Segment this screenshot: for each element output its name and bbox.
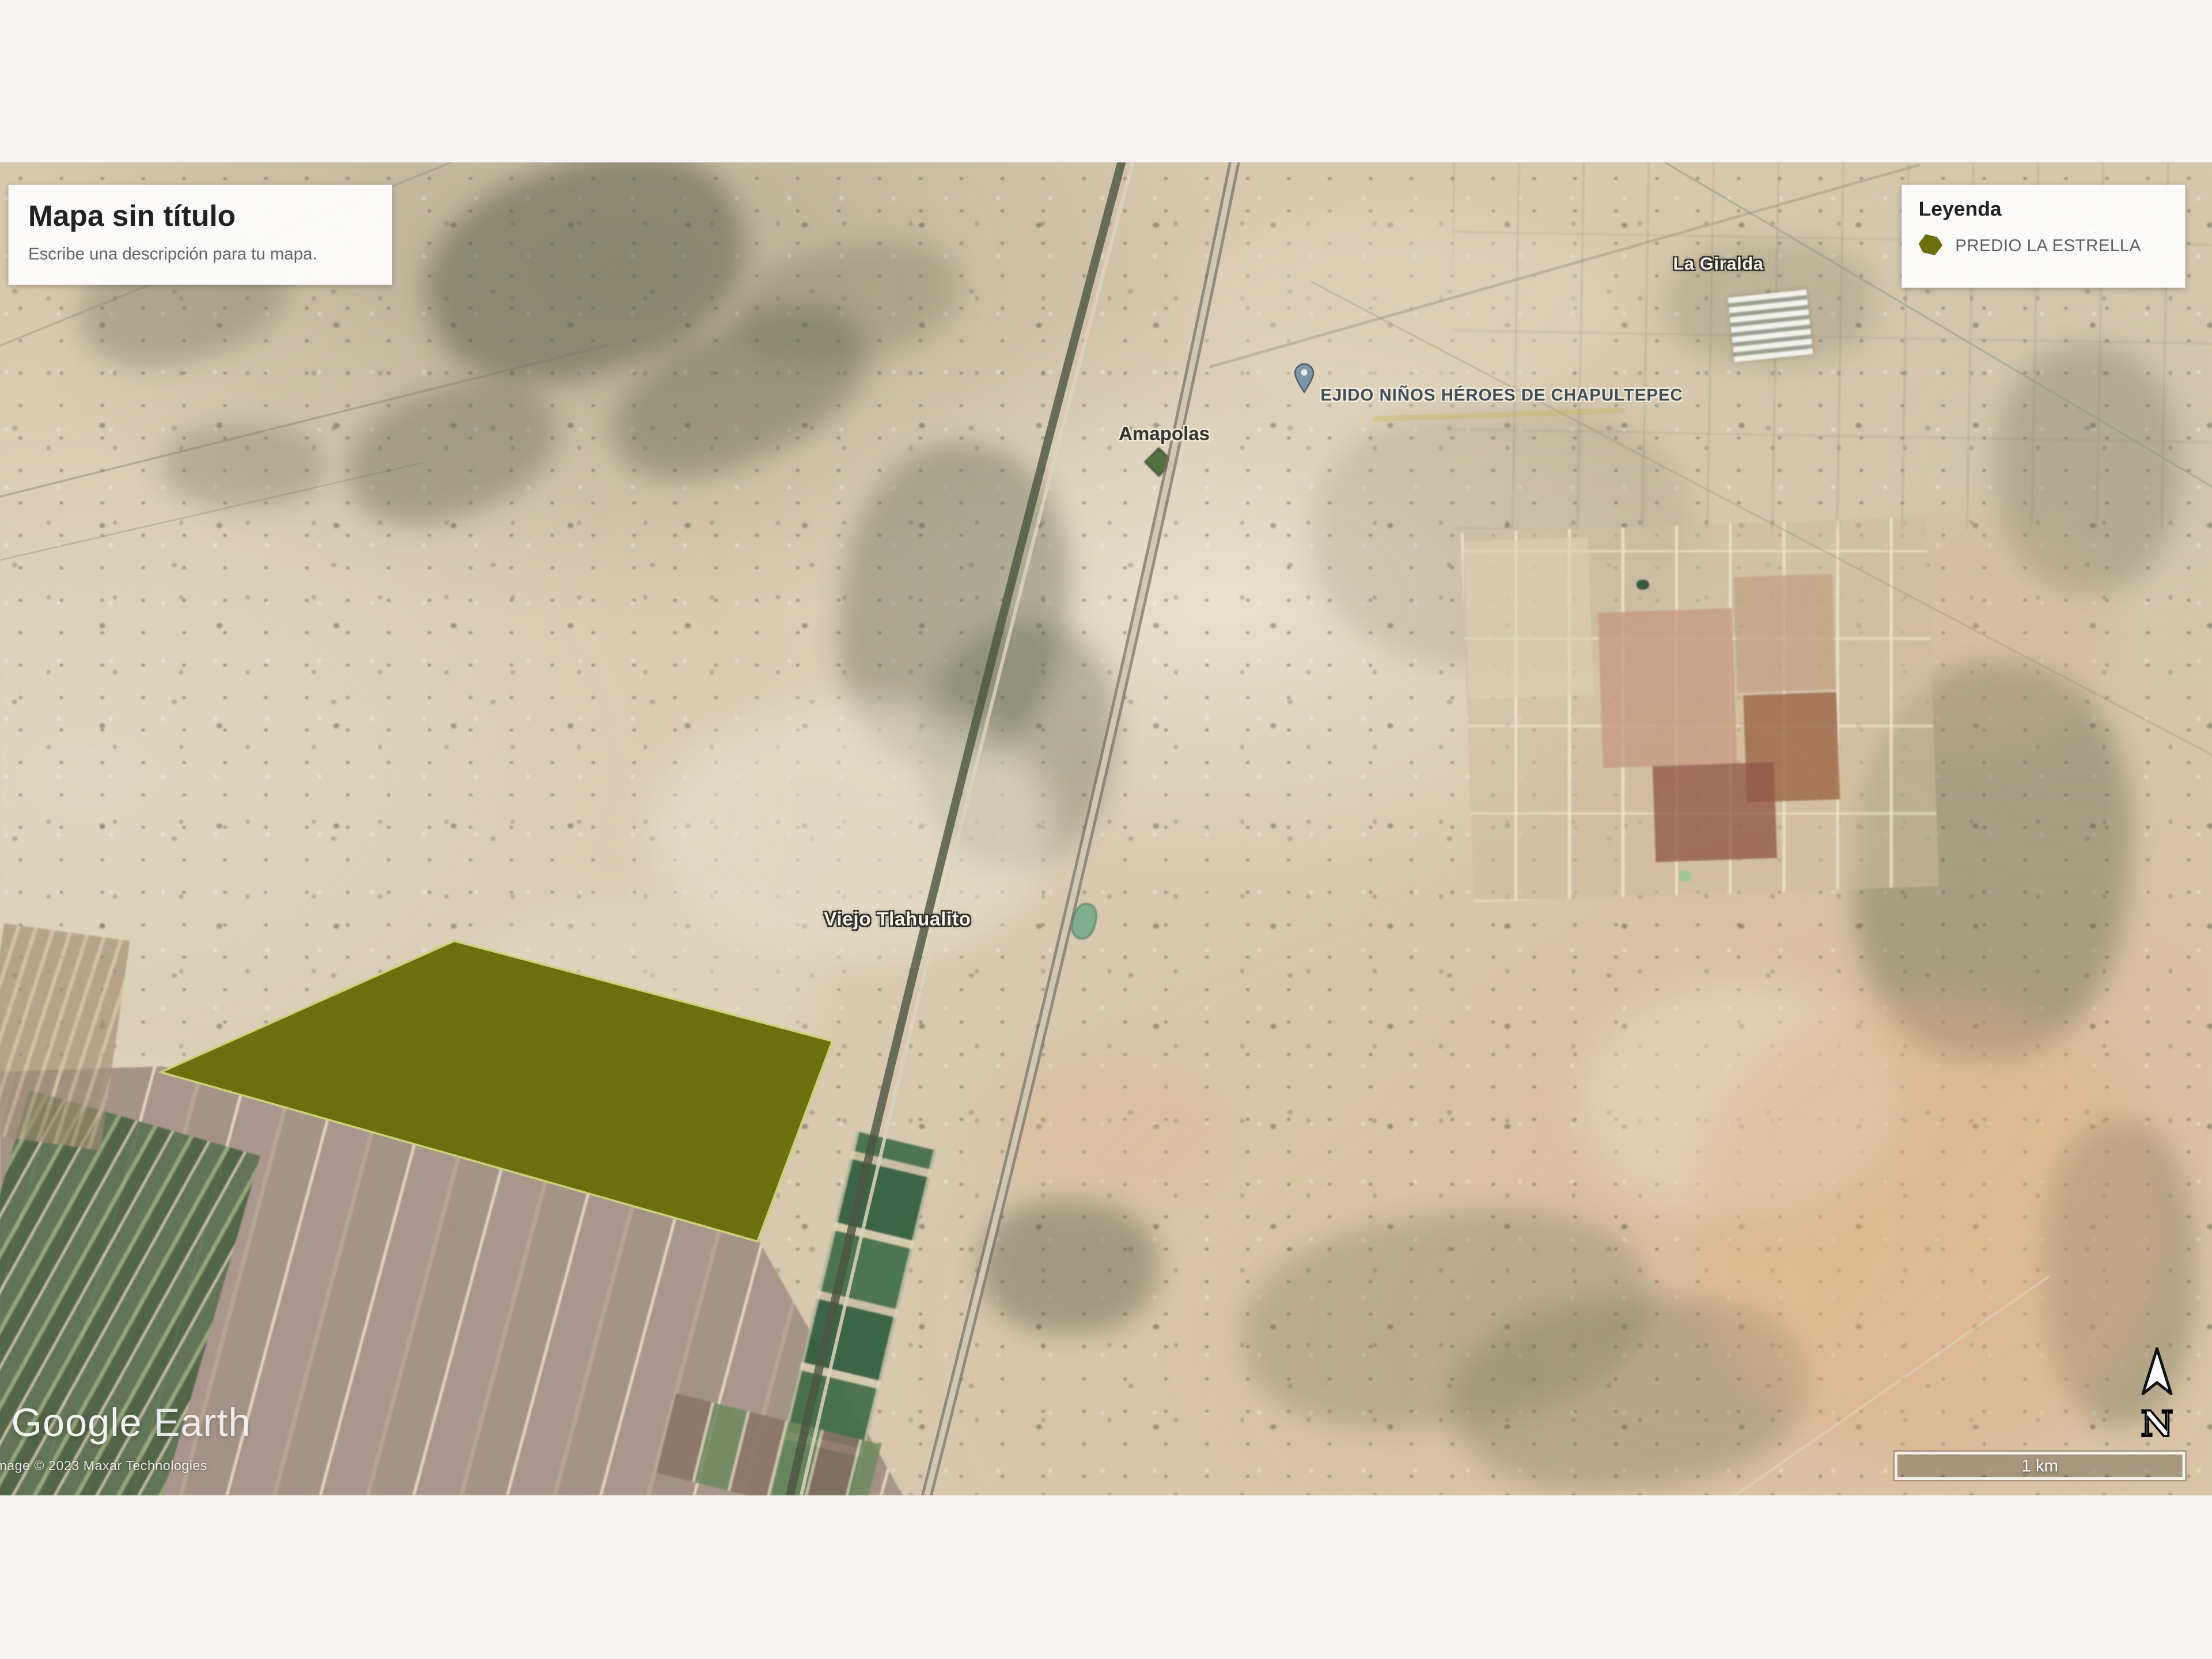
north-compass: N (2134, 1347, 2179, 1442)
map-label-ejido: EJIDO NIÑOS HÉROES DE CHAPULTEPEC (1320, 385, 1683, 405)
map-title-card: Mapa sin título Escribe una descripción … (9, 185, 392, 285)
legend-item: PREDIO LA ESTRELLA (1919, 234, 2168, 256)
map-label-la-giralda: La Giralda (1673, 254, 1763, 274)
predio-la-estrella-polygon[interactable] (161, 941, 832, 1241)
north-label: N (2134, 1407, 2179, 1442)
scale-bar: 1 km (1895, 1452, 2185, 1480)
map-canvas[interactable]: La Giralda EJIDO NIÑOS HÉROES DE CHAPULT… (0, 162, 2212, 1495)
feature-layer (0, 162, 2212, 1495)
letterbox-top (0, 0, 2212, 162)
north-arrow-icon (2139, 1347, 2176, 1398)
map-label-viejo-tlahualito: Viejo Tlahualito (824, 908, 971, 930)
imagery-copyright: Image © 2023 Maxar Technologies (0, 1459, 207, 1474)
legend-title: Leyenda (1919, 199, 2168, 221)
map-label-amapolas: Amapolas (1119, 423, 1210, 445)
google-earth-logo-google: Google (12, 1401, 142, 1445)
map-description: Escribe una descripción para tu mapa. (28, 244, 373, 264)
letterbox-bottom (0, 1495, 2212, 1659)
map-title: Mapa sin título (28, 200, 373, 234)
screenshot-stage: La Giralda EJIDO NIÑOS HÉROES DE CHAPULT… (0, 0, 2212, 1659)
scale-bar-label: 1 km (2021, 1456, 2058, 1475)
legend-card: Leyenda PREDIO LA ESTRELLA (1902, 185, 2185, 288)
legend-item-label: PREDIO LA ESTRELLA (1955, 235, 2141, 255)
polygon-swatch-icon (1919, 234, 1943, 256)
google-earth-logo-earth: Earth (154, 1401, 251, 1445)
google-earth-logo: Google Earth (12, 1401, 251, 1446)
place-pin-icon[interactable] (1294, 362, 1315, 393)
